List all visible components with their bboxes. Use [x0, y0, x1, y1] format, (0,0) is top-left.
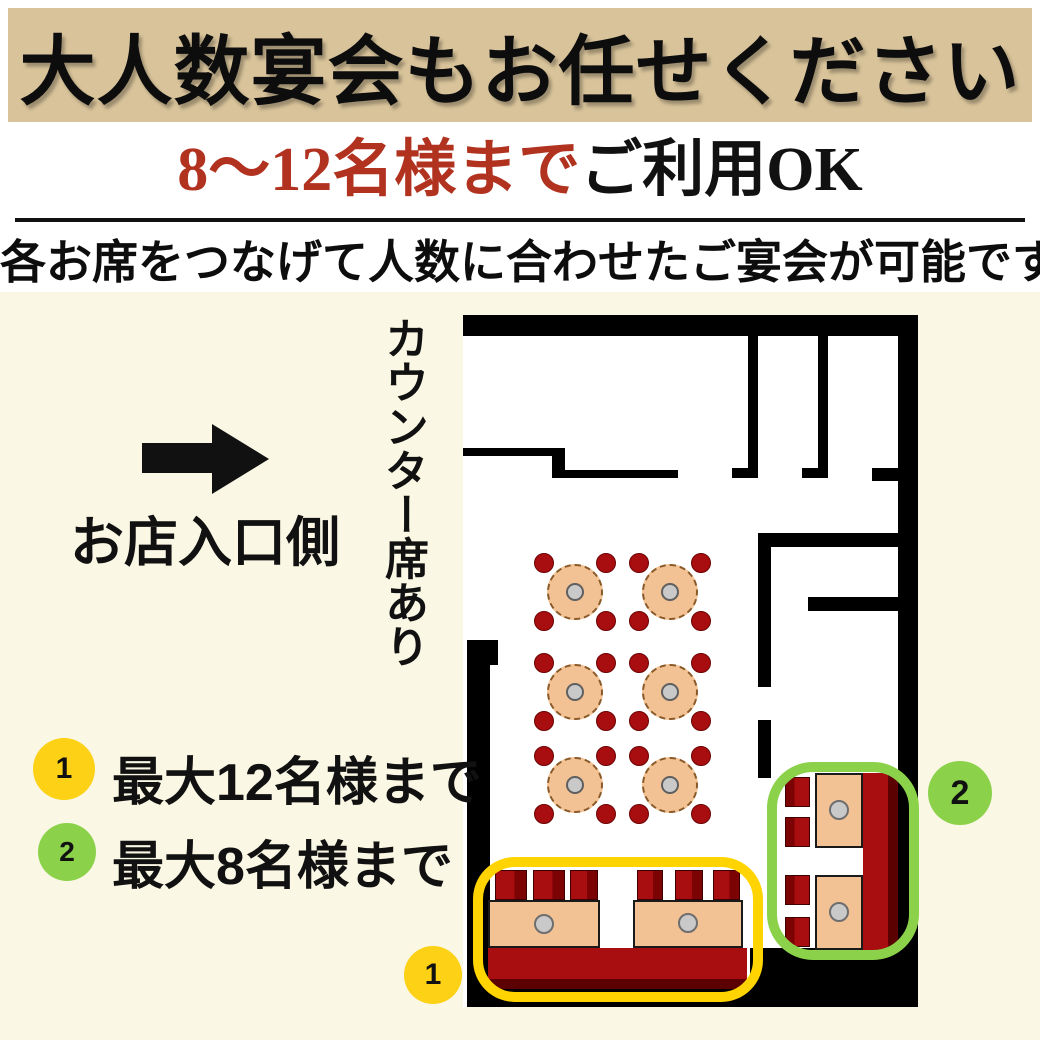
wall-right: [898, 315, 918, 1007]
chair: [534, 804, 554, 824]
wall-left: [467, 640, 490, 1007]
chair: [596, 804, 616, 824]
bench-seat: [533, 870, 565, 900]
bench-seat: [785, 817, 810, 847]
partition-1: [748, 336, 758, 478]
chair: [691, 611, 711, 631]
chair: [534, 611, 554, 631]
round-table: [547, 564, 603, 620]
floor-plan: [463, 315, 918, 1007]
bench-seat: [785, 875, 810, 905]
entrance-label: お店入口側: [70, 498, 340, 577]
round-table: [547, 664, 603, 720]
round-table: [642, 664, 698, 720]
legend-1-label: 最大12名様まで: [112, 740, 482, 815]
subtitle-line: 8〜12名様までご利用OK: [0, 124, 1040, 216]
wall-top: [463, 315, 918, 336]
bench-seat: [570, 870, 598, 900]
divider-line: [15, 218, 1025, 222]
partition-1-foot: [732, 468, 748, 478]
legend-circle-2: 2: [38, 823, 96, 881]
table-center-dot: [566, 583, 584, 601]
bench-seat: [785, 777, 810, 807]
chair: [596, 553, 616, 573]
chair: [691, 804, 711, 824]
subtitle-section: 8〜12名様までご利用OK 各お席をつなげて人数に合わせたご宴会が可能です: [0, 122, 1040, 292]
legend-2-label: 最大8名様まで: [112, 824, 453, 899]
chair: [596, 653, 616, 673]
subtitle-suffix: ご利用OK: [580, 136, 862, 204]
round-table: [547, 757, 603, 813]
legend-1-number: 1: [56, 752, 73, 786]
partition-2: [818, 336, 828, 478]
table-center-dot: [661, 583, 679, 601]
right-arrow-icon: [142, 443, 214, 473]
banquet-infographic: { "banner": { "title": "大人数宴会もお任せください", …: [0, 0, 1040, 1040]
legend-circle-1: 1: [33, 738, 95, 800]
chair: [691, 553, 711, 573]
bench-seat: [637, 870, 663, 900]
partition-2-foot: [802, 468, 818, 478]
counter-wall-b: [565, 470, 678, 478]
counter-seats-note: カウンター席あり: [372, 316, 432, 686]
chair: [534, 653, 554, 673]
table-center-dot: [566, 776, 584, 794]
counter-wall-a: [463, 448, 565, 456]
chair: [629, 746, 649, 766]
chair: [629, 553, 649, 573]
chair: [691, 653, 711, 673]
chair: [691, 711, 711, 731]
chair: [534, 746, 554, 766]
wall-stub-right: [872, 468, 898, 481]
bench-seat: [785, 917, 810, 947]
area-2-marker: 2: [928, 761, 992, 825]
chair: [629, 611, 649, 631]
description-text: 各お席をつなげて人数に合わせたご宴会が可能です: [0, 226, 1040, 292]
room-wall-left: [758, 533, 771, 687]
room-wall-top: [758, 533, 898, 547]
round-table: [642, 564, 698, 620]
room-divider: [808, 597, 898, 611]
legend-2-number: 2: [59, 836, 75, 868]
subtitle-highlight: 8〜12名様まで: [177, 136, 580, 204]
chair: [629, 711, 649, 731]
area-2-marker-number: 2: [951, 774, 970, 813]
side-bench: [863, 773, 898, 950]
table-center-dot: [661, 683, 679, 701]
table-center-dot: [829, 902, 849, 922]
banner-title: 大人数宴会もお任せください: [20, 10, 1021, 120]
bench-seat: [713, 870, 740, 900]
chair: [596, 711, 616, 731]
round-table: [642, 757, 698, 813]
table-center-dot: [678, 913, 698, 933]
chair: [534, 711, 554, 731]
table-center-dot: [534, 914, 554, 934]
chair: [534, 553, 554, 573]
area-1-marker-number: 1: [425, 958, 442, 992]
table-center-dot: [566, 683, 584, 701]
chair: [596, 611, 616, 631]
table-center-dot: [661, 776, 679, 794]
bench-seat: [495, 870, 527, 900]
right-arrow-icon-head: [212, 424, 269, 494]
area-1-marker: 1: [404, 946, 462, 1004]
top-banner: 大人数宴会もお任せください: [8, 8, 1032, 122]
table-center-dot: [829, 800, 849, 820]
chair: [691, 746, 711, 766]
long-bench: [488, 948, 747, 989]
chair: [629, 653, 649, 673]
chair: [629, 804, 649, 824]
chair: [596, 746, 616, 766]
room-wall-left-lower: [758, 720, 771, 778]
bench-seat: [675, 870, 703, 900]
